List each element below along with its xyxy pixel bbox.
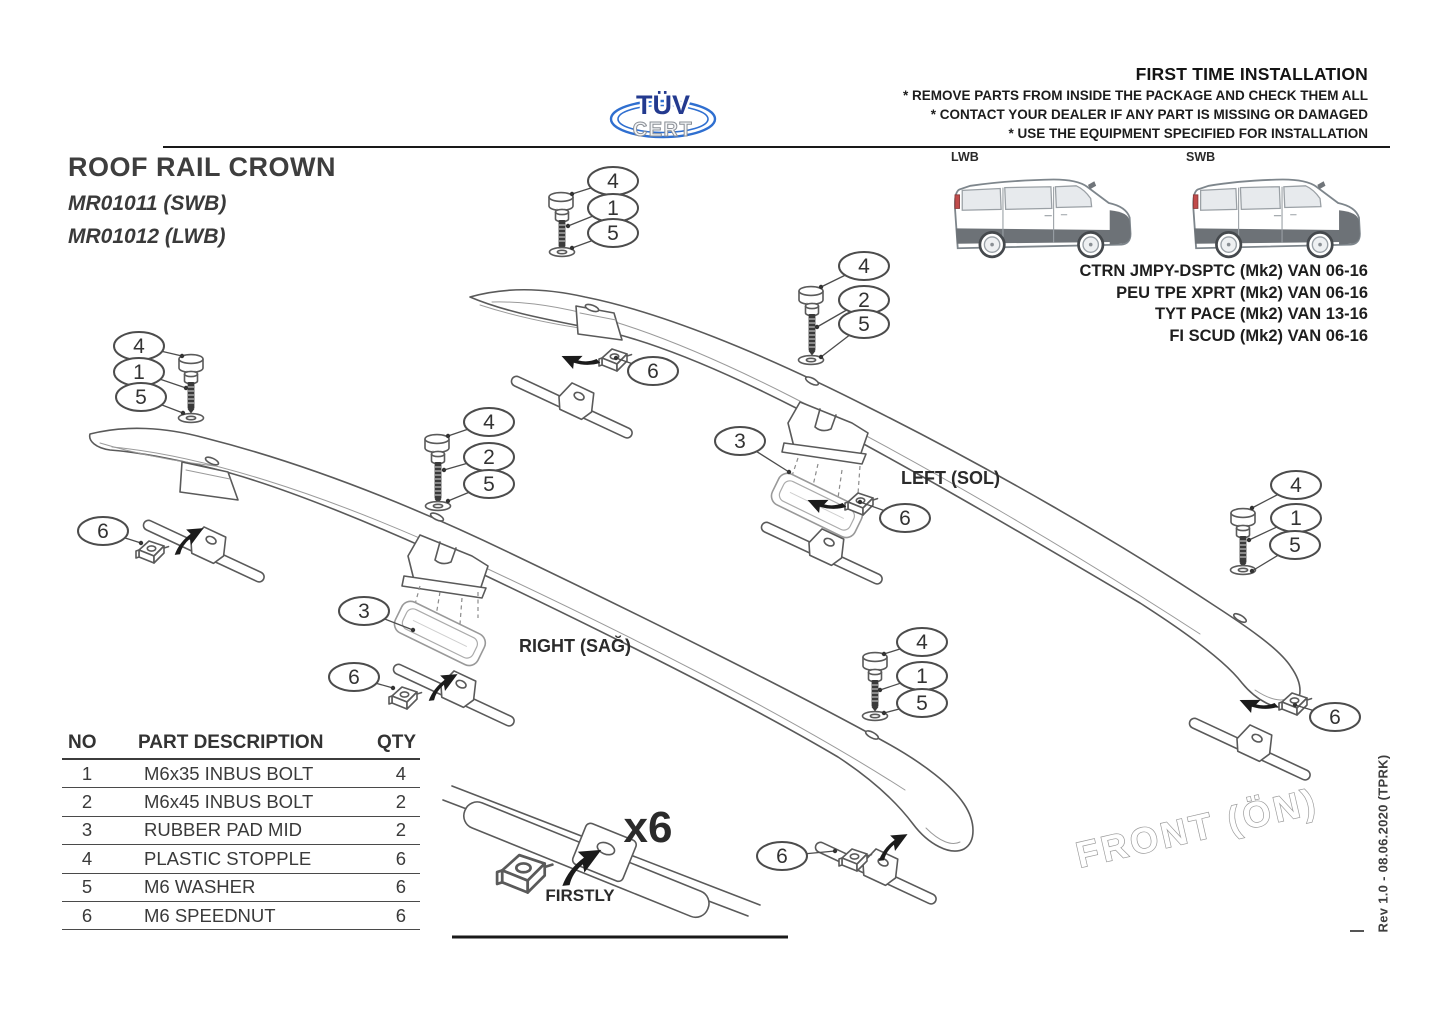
- part-desc: M6x35 INBUS BOLT: [112, 763, 354, 785]
- svg-text:3: 3: [358, 600, 370, 623]
- table-row: 1 M6x35 INBUS BOLT 4: [62, 760, 420, 788]
- table-row: 6 M6 SPEEDNUT 6: [62, 902, 420, 930]
- svg-text:6: 6: [1329, 706, 1341, 729]
- svg-text:4: 4: [858, 255, 870, 278]
- part-desc: M6x45 INBUS BOLT: [112, 791, 354, 813]
- svg-text:3: 3: [734, 430, 746, 453]
- part-qty: 2: [354, 791, 420, 813]
- svg-text:6: 6: [899, 507, 911, 530]
- instruction-sheet: FIRST TIME INSTALLATION * REMOVE PARTS F…: [0, 0, 1445, 1022]
- svg-text:5: 5: [607, 222, 619, 245]
- table-row: 2 M6x45 INBUS BOLT 2: [62, 788, 420, 816]
- svg-text:1: 1: [607, 197, 619, 220]
- svg-text:4: 4: [916, 631, 928, 654]
- svg-text:1: 1: [916, 665, 928, 688]
- callout-washer: 5: [819, 310, 889, 359]
- svg-text:5: 5: [483, 473, 495, 496]
- svg-text:6: 6: [97, 520, 109, 543]
- svg-text:6: 6: [647, 360, 659, 383]
- part-desc: M6 SPEEDNUT: [112, 905, 354, 927]
- callout-stopple: 4: [819, 252, 889, 289]
- svg-text:2: 2: [858, 289, 870, 312]
- callout-washer: 5: [446, 470, 514, 503]
- detail-qty-label: x6: [624, 803, 673, 852]
- svg-text:5: 5: [916, 692, 928, 715]
- fastener-stack-right-rear: [863, 653, 888, 721]
- col-header-qty: QTY: [364, 732, 420, 754]
- callout-rubber-pad: 3: [715, 427, 791, 474]
- svg-text:5: 5: [858, 313, 870, 336]
- speednut-assembly-right-front: [136, 503, 273, 585]
- part-no: 4: [62, 848, 112, 870]
- part-no: 6: [62, 905, 112, 927]
- svg-text:4: 4: [607, 170, 619, 193]
- parts-table: NO PART DESCRIPTION QTY 1 M6x35 INBUS BO…: [62, 732, 420, 930]
- table-row: 5 M6 WASHER 6: [62, 874, 420, 902]
- callout-bolt45: 2: [442, 443, 514, 472]
- callout-speednut: 6: [858, 500, 930, 532]
- fastener-stack-left-rear: [1231, 509, 1256, 575]
- svg-text:1: 1: [1290, 507, 1302, 530]
- fastener-stack-right-mid: [425, 435, 451, 511]
- parts-table-header: NO PART DESCRIPTION QTY: [62, 732, 420, 760]
- svg-text:6: 6: [776, 845, 788, 868]
- part-qty: 6: [354, 876, 420, 898]
- part-no: 5: [62, 876, 112, 898]
- right-rail-label: RIGHT (SAĞ): [519, 635, 631, 656]
- callout-speednut: 6: [614, 356, 678, 385]
- svg-text:2: 2: [483, 446, 495, 469]
- speednut-assembly-left-rear: [1187, 689, 1319, 783]
- table-row: 3 RUBBER PAD MID 2: [62, 817, 420, 845]
- revision-text: Rev 1.0 - 08.06.2020 (TPRK): [1376, 744, 1391, 944]
- part-no: 1: [62, 763, 112, 785]
- svg-text:5: 5: [1289, 534, 1301, 557]
- callout-stopple: 4: [114, 332, 184, 360]
- part-no: 2: [62, 791, 112, 813]
- callout-speednut: 6: [78, 517, 143, 545]
- callout-stopple: 4: [570, 167, 638, 196]
- table-row: 4 PLASTIC STOPPLE 6: [62, 845, 420, 873]
- svg-text:4: 4: [483, 411, 495, 434]
- svg-text:4: 4: [1290, 474, 1302, 497]
- callout-bolt35: 1: [878, 662, 947, 692]
- part-desc: M6 WASHER: [112, 876, 354, 898]
- part-desc: PLASTIC STOPPLE: [112, 848, 354, 870]
- detail-step-label: FIRSTLY: [545, 886, 615, 905]
- front-direction-watermark: FRONT (ÖN): [1072, 780, 1322, 876]
- part-desc: RUBBER PAD MID: [112, 819, 354, 841]
- detail-speednut: [497, 855, 552, 892]
- svg-text:4: 4: [133, 335, 145, 358]
- part-qty: 4: [354, 763, 420, 785]
- speednut-detail: x6 FIRSTLY: [443, 778, 788, 937]
- part-qty: 6: [354, 848, 420, 870]
- callout-speednut: 6: [329, 663, 395, 691]
- callout-stopple: 4: [882, 628, 947, 656]
- left-rail-label: LEFT (SOL): [901, 468, 1000, 488]
- svg-text:1: 1: [133, 361, 145, 384]
- callout-washer: 5: [1250, 531, 1320, 573]
- callout-stopple: 4: [446, 408, 514, 438]
- part-qty: 6: [354, 905, 420, 927]
- callout-washer: 5: [116, 383, 185, 415]
- part-no: 3: [62, 819, 112, 841]
- callout-washer: 5: [570, 219, 638, 250]
- svg-text:5: 5: [135, 386, 147, 409]
- col-header-desc: PART DESCRIPTION: [126, 732, 364, 754]
- callout-washer: 5: [882, 689, 947, 717]
- part-qty: 2: [354, 819, 420, 841]
- svg-text:6: 6: [348, 666, 360, 689]
- callout-speednut: 6: [1293, 703, 1360, 731]
- col-header-no: NO: [62, 732, 126, 754]
